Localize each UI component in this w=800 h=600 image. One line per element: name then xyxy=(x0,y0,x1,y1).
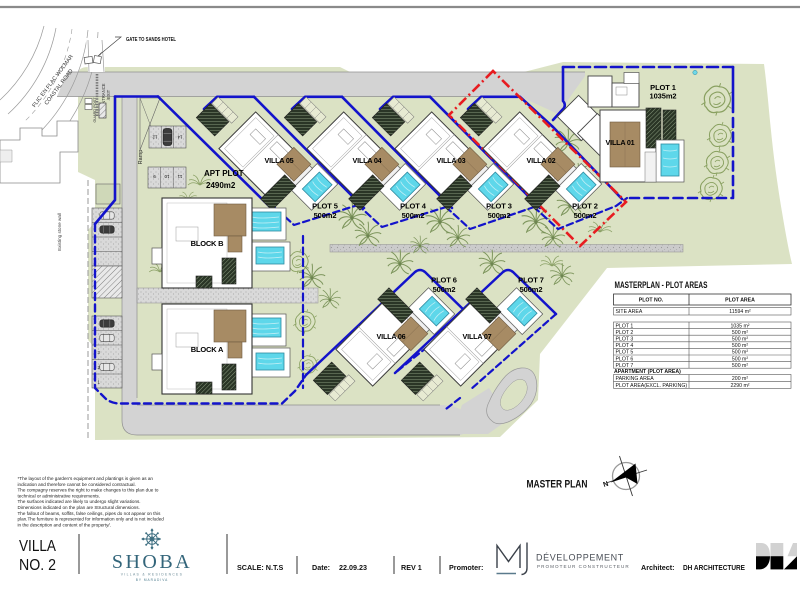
svg-text:VILLA 07: VILLA 07 xyxy=(463,332,492,341)
svg-text:500 m²: 500 m² xyxy=(732,350,748,356)
svg-text:APT PLOT: APT PLOT xyxy=(204,169,244,178)
svg-text:APARTMENT (PLOT AREA): APARTMENT (PLOT AREA) xyxy=(614,369,681,375)
svg-text:/EXIT: /EXIT xyxy=(106,89,111,100)
svg-text:14: 14 xyxy=(177,135,183,140)
svg-text:NO. 2: NO. 2 xyxy=(19,557,56,574)
svg-text:500m2: 500m2 xyxy=(433,285,456,294)
svg-text:Promoter:: Promoter: xyxy=(449,563,483,572)
svg-text:VILLA 02: VILLA 02 xyxy=(527,156,556,165)
svg-text:PLOT 2: PLOT 2 xyxy=(572,202,598,211)
svg-text:PLOT 4: PLOT 4 xyxy=(616,343,634,349)
svg-text:PLOT NO.: PLOT NO. xyxy=(639,298,664,304)
svg-text:500 m²: 500 m² xyxy=(732,330,748,336)
svg-text:MASTER PLAN: MASTER PLAN xyxy=(527,479,588,491)
svg-text:500m2: 500m2 xyxy=(314,211,337,220)
svg-text:2490m2: 2490m2 xyxy=(206,181,236,190)
svg-text:DH ARCHITECTURE: DH ARCHITECTURE xyxy=(683,563,745,572)
svg-text:1035m2: 1035m2 xyxy=(650,92,677,101)
svg-text:500m2: 500m2 xyxy=(520,285,543,294)
svg-text:PLOT 4: PLOT 4 xyxy=(400,202,427,211)
svg-text:MASTERPLAN - PLOT AREAS: MASTERPLAN - PLOT AREAS xyxy=(615,280,708,290)
svg-text:The fallout of beams, soffits,: The fallout of beams, soffits, false cei… xyxy=(18,511,162,516)
svg-text:VILLA 01: VILLA 01 xyxy=(606,138,635,147)
svg-text:Architect:: Architect: xyxy=(641,563,675,572)
svg-text:22.09.23: 22.09.23 xyxy=(339,563,367,572)
svg-text:200 m²: 200 m² xyxy=(732,376,748,382)
svg-text:SCALE: N.T.S: SCALE: N.T.S xyxy=(237,563,284,572)
svg-text:PLOT 3: PLOT 3 xyxy=(486,202,512,211)
svg-text:11594 m²: 11594 m² xyxy=(729,309,751,315)
svg-text:VILLA: VILLA xyxy=(19,538,57,555)
svg-text:500 m²: 500 m² xyxy=(732,363,748,369)
svg-text:500m2: 500m2 xyxy=(402,211,425,220)
svg-text:2290 m²: 2290 m² xyxy=(730,383,749,389)
svg-text:PLOT 7: PLOT 7 xyxy=(518,276,544,285)
svg-text:PLOT 5: PLOT 5 xyxy=(312,202,338,211)
svg-text:VILLA 04: VILLA 04 xyxy=(353,156,382,165)
svg-text:PLOT 3: PLOT 3 xyxy=(616,337,634,343)
svg-text:SITE AREA: SITE AREA xyxy=(616,309,643,315)
svg-text:PLOT AREA(EXCL. PARKING): PLOT AREA(EXCL. PARKING) xyxy=(616,383,688,389)
svg-text:BLOCK A: BLOCK A xyxy=(191,345,224,354)
svg-text:*The layout of the garden's eq: *The layout of the garden's equipment an… xyxy=(18,476,154,481)
svg-text:500m2: 500m2 xyxy=(488,211,511,220)
svg-text:indication and therefore canno: indication and therefore cannot be consi… xyxy=(18,482,136,487)
svg-text:Existing stone wall: Existing stone wall xyxy=(57,213,62,251)
svg-text:PLOT 2: PLOT 2 xyxy=(616,330,634,336)
svg-text:SHOBA: SHOBA xyxy=(112,551,192,573)
svg-text:500m2: 500m2 xyxy=(574,211,597,220)
svg-text:GUARD POST: GUARD POST xyxy=(93,97,97,123)
svg-text:PLOT 6: PLOT 6 xyxy=(431,276,457,285)
svg-text:PLOT 5: PLOT 5 xyxy=(616,350,634,356)
svg-text:plan.The furniture is represen: plan.The furniture is represented for in… xyxy=(18,517,165,522)
svg-text:Ramp: Ramp xyxy=(138,150,144,165)
svg-text:REV 1: REV 1 xyxy=(401,563,422,572)
svg-text:500 m²: 500 m² xyxy=(732,356,748,362)
svg-text:The surfaces indicated are lik: The surfaces indicated are likely to und… xyxy=(18,499,141,504)
svg-text:12: 12 xyxy=(152,135,158,140)
svg-text:PLOT 6: PLOT 6 xyxy=(616,356,634,362)
svg-text:11: 11 xyxy=(177,174,182,179)
svg-text:BY MARADIVA: BY MARADIVA xyxy=(136,578,169,582)
svg-text:500 m²: 500 m² xyxy=(732,343,748,349)
svg-text:Dimensions indicated on the pl: Dimensions indicated on the plan are Str… xyxy=(18,505,140,510)
svg-text:VILLA 05: VILLA 05 xyxy=(265,156,294,165)
svg-text:PLOT AREA: PLOT AREA xyxy=(725,298,755,304)
svg-text:in the description and content: in the description and content of the pr… xyxy=(18,522,111,527)
svg-text:500 m²: 500 m² xyxy=(732,337,748,343)
svg-text:GATE TO SANDS HOTEL: GATE TO SANDS HOTEL xyxy=(126,37,177,43)
svg-text:BLOCK B: BLOCK B xyxy=(191,239,225,248)
svg-text:The compagny reserves the righ: The compagny reserves the right to make … xyxy=(18,488,159,493)
svg-text:10: 10 xyxy=(164,174,170,179)
svg-text:VILLAS & RESIDENCES: VILLAS & RESIDENCES xyxy=(121,573,183,577)
svg-text:technical or administrative re: technical or administrative requirements… xyxy=(18,493,100,498)
svg-text:VILLA 03: VILLA 03 xyxy=(437,156,466,165)
svg-text:PLOT 7: PLOT 7 xyxy=(616,363,634,369)
svg-text:PARKING AREA: PARKING AREA xyxy=(616,376,655,382)
svg-text:1035 m²: 1035 m² xyxy=(730,323,749,329)
svg-text:Date:: Date: xyxy=(312,563,330,572)
svg-text:DÉVELOPPEMENT: DÉVELOPPEMENT xyxy=(536,553,624,563)
svg-text:PLOT 1: PLOT 1 xyxy=(616,323,634,329)
svg-text:VILLA 06: VILLA 06 xyxy=(377,332,406,341)
svg-text:PROMOTEUR CONSTRUCTEUR: PROMOTEUR CONSTRUCTEUR xyxy=(537,564,630,569)
